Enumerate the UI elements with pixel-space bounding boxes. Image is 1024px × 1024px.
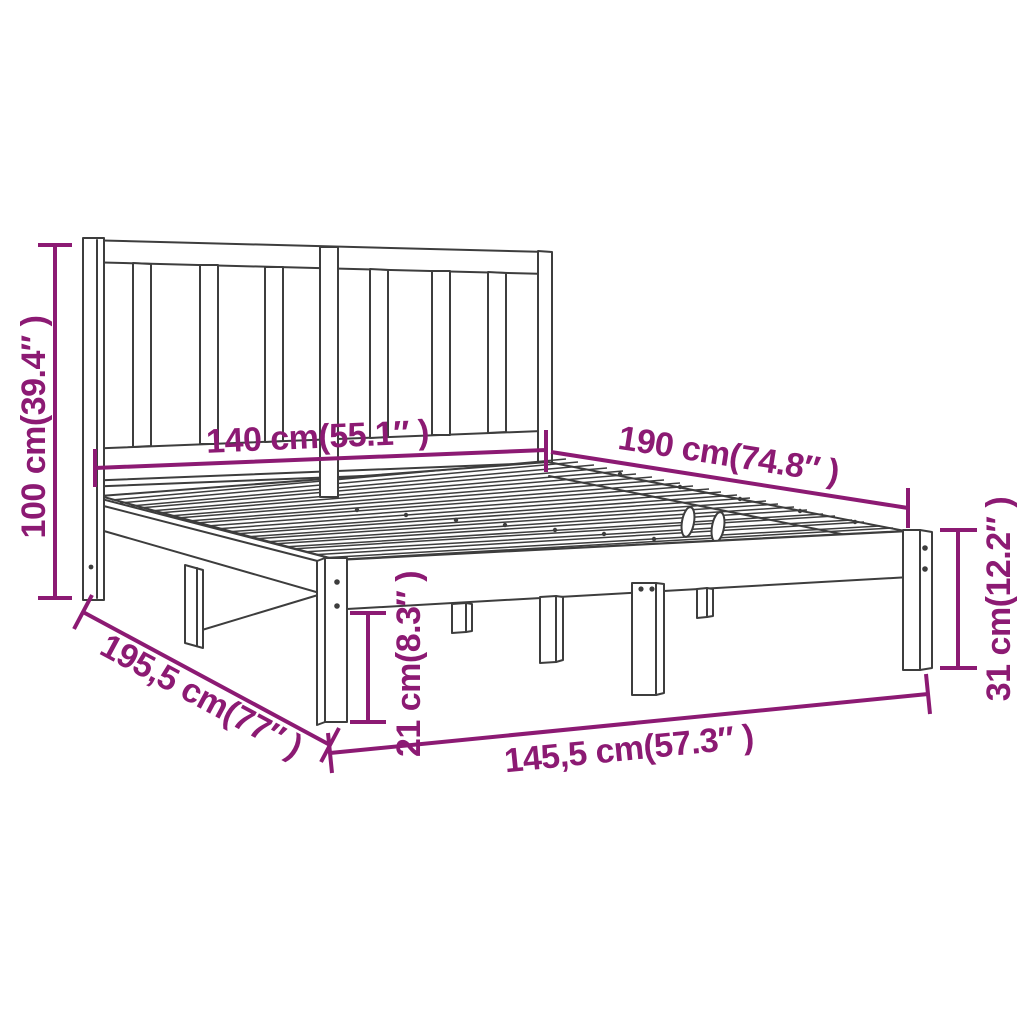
headboard-slat <box>370 269 388 438</box>
dim-label-side-height: 31 cm(12.2″ ) <box>980 497 1018 701</box>
headboard-slat <box>200 265 218 444</box>
headboard-top-rail <box>83 240 548 274</box>
far-leg-stub <box>452 603 466 633</box>
bed-frame-drawing: 100 cm(39.4″ ) 140 cm(55.1″ ) 190 cm(74.… <box>0 0 1024 1024</box>
headboard-slat <box>265 267 283 442</box>
headboard-slat <box>432 271 450 435</box>
under-bed-edge <box>192 592 328 633</box>
foot-right-corner-post-side <box>920 530 932 670</box>
front-mid-leg <box>632 583 656 695</box>
headboard-slat <box>488 272 506 433</box>
dimension-diagram: 100 cm(39.4″ ) 140 cm(55.1″ ) 190 cm(74.… <box>0 0 1024 1024</box>
headboard-left-post <box>83 238 104 600</box>
dimension-side-height: 31 cm(12.2″ ) <box>940 497 1018 701</box>
far-leg-stub-side <box>556 596 563 662</box>
dim-label-total-width: 145,5 cm(57.3″ ) <box>503 718 756 781</box>
far-leg-stub-side <box>707 588 713 617</box>
front-left-post-side <box>317 558 325 725</box>
dim-label-under-bed-clearance: 21 cm(8.3″ ) <box>390 571 428 757</box>
dimension-total-height: 100 cm(39.4″ ) <box>15 245 72 598</box>
dimension-total-length: 195,5 cm(77″ ) <box>74 595 339 766</box>
far-leg-stub <box>697 588 707 618</box>
far-leg-stub <box>540 596 556 663</box>
dim-label-total-height: 100 cm(39.4″ ) <box>15 316 53 539</box>
far-mid-leg <box>185 565 203 648</box>
front-mid-leg-side <box>656 583 664 695</box>
far-leg-stub-side <box>466 603 472 632</box>
foot-right-corner-post <box>903 530 920 670</box>
headboard-slat <box>133 263 151 447</box>
